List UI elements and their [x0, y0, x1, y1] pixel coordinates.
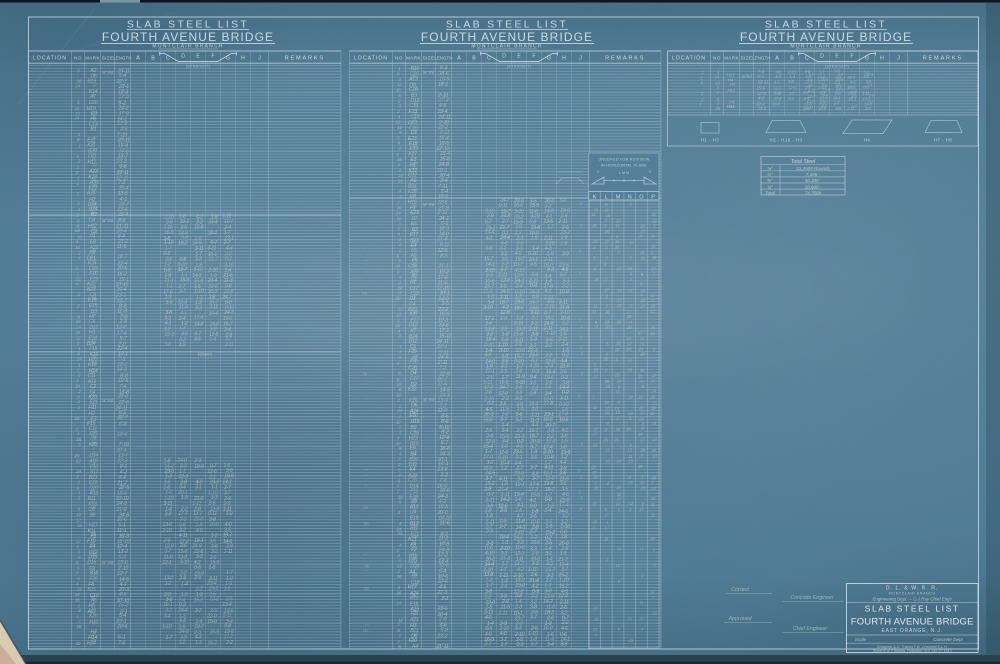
svg-text:3-3: 3-3	[865, 106, 871, 111]
svg-text:21-0: 21-0	[559, 363, 570, 369]
svg-text:18-8: 18-8	[483, 417, 493, 423]
svg-text:17-2: 17-2	[774, 96, 782, 101]
svg-text:20: 20	[650, 395, 656, 400]
svg-text:SIZE: SIZE	[102, 56, 114, 61]
svg-text:2-9: 2-9	[193, 575, 201, 581]
svg-text:SLAB STEEL LIST: SLAB STEEL LIST	[765, 19, 887, 31]
svg-text:1-2: 1-2	[164, 581, 171, 587]
svg-text:16: 16	[396, 591, 401, 597]
svg-text:10,600 ·: 10,600 ·	[805, 184, 822, 189]
svg-text:29: 29	[650, 378, 656, 383]
svg-text:29: 29	[627, 480, 633, 485]
svg-text:O: O	[649, 170, 652, 174]
svg-text:19-2: 19-2	[178, 240, 188, 246]
svg-text:3-9: 3-9	[562, 251, 569, 257]
svg-text:MARK: MARK	[85, 56, 100, 61]
svg-text:0-3: 0-3	[515, 396, 522, 402]
svg-text:H1 - H3: H1 - H3	[701, 138, 719, 143]
svg-text:20: 20	[590, 465, 596, 470]
svg-text:3-3: 3-3	[547, 267, 554, 273]
svg-text:3-10: 3-10	[193, 267, 203, 273]
svg-text:22: 22	[591, 310, 597, 315]
svg-text:21: 21	[410, 503, 415, 508]
svg-text:10-7: 10-7	[513, 262, 524, 268]
svg-text:18'-1: 18'-1	[438, 82, 448, 88]
svg-text:24: 24	[76, 586, 82, 592]
svg-text:15'-9: 15'-9	[756, 86, 765, 91]
svg-text:⅝″ Rd: ⅝″ Rd	[423, 202, 435, 207]
svg-text:21: 21	[90, 500, 95, 505]
svg-text:23: 23	[592, 239, 598, 244]
svg-text:23-0: 23-0	[514, 583, 525, 589]
svg-text:19-9: 19-9	[823, 88, 831, 93]
svg-text:Chief Engineer: Chief Engineer	[793, 626, 828, 632]
svg-text:10-8: 10-8	[559, 290, 569, 296]
svg-text:23'-6: 23'-6	[436, 606, 447, 612]
svg-text:3-3: 3-3	[515, 417, 522, 423]
svg-text:Engineering Dept — G.J.Ray Chi: Engineering Dept — G.J.Ray Chief Eng'r	[872, 597, 952, 602]
svg-text:24: 24	[395, 441, 401, 447]
svg-text:1-2: 1-2	[501, 465, 508, 471]
svg-text:24: 24	[395, 210, 401, 216]
svg-text:H13: H13	[727, 88, 735, 93]
svg-text:C6: C6	[89, 319, 95, 325]
svg-text:24: 24	[74, 416, 80, 422]
svg-text:16-2: 16-2	[208, 640, 218, 646]
svg-text:2-11: 2-11	[557, 219, 567, 225]
svg-text:20'-6: 20'-6	[116, 266, 127, 272]
svg-text:26: 26	[604, 229, 610, 234]
svg-text:19'-7: 19'-7	[117, 255, 128, 261]
svg-text:1-1: 1-1	[211, 485, 218, 491]
svg-text:3-10: 3-10	[773, 90, 781, 95]
svg-text:0-3: 0-3	[517, 642, 524, 648]
svg-text:20'-6: 20'-6	[116, 624, 127, 630]
svg-text:B1: B1	[90, 127, 96, 133]
svg-text:H: H	[562, 56, 566, 62]
svg-text:16-8: 16-8	[821, 77, 829, 82]
svg-text:1-10: 1-10	[162, 624, 172, 630]
svg-text:2-11: 2-11	[224, 342, 234, 348]
svg-text:1: 1	[580, 474, 582, 479]
svg-text:25: 25	[593, 368, 599, 373]
svg-text:12'-6: 12'-6	[118, 378, 128, 384]
svg-text:Concrete Engineer: Concrete Engineer	[790, 595, 834, 601]
svg-text:22-3: 22-3	[164, 332, 175, 338]
svg-text:2-9: 2-9	[178, 575, 186, 581]
svg-text:12: 12	[397, 382, 402, 388]
svg-text:16-0: 16-0	[209, 522, 219, 528]
svg-text:MONTCLAIR BRANCH: MONTCLAIR BRANCH	[889, 592, 936, 596]
svg-text:24: 24	[74, 84, 80, 90]
svg-text:16: 16	[716, 106, 721, 111]
svg-text:2-3: 2-3	[485, 529, 493, 535]
svg-text:20: 20	[650, 448, 656, 453]
svg-text:14-2: 14-2	[500, 497, 510, 503]
svg-text:8'-5: 8'-5	[440, 253, 448, 259]
svg-text:13-2: 13-2	[209, 597, 219, 603]
svg-text:19-9: 19-9	[821, 93, 829, 98]
svg-text:27: 27	[639, 304, 645, 309]
svg-text:EAST ORANGE, N.J.: EAST ORANGE, N.J.	[882, 628, 943, 634]
svg-text:21'-11: 21'-11	[435, 644, 448, 650]
svg-text:12: 12	[396, 312, 401, 318]
svg-text:3-1: 3-1	[195, 484, 202, 490]
svg-text:0-8: 0-8	[545, 497, 552, 503]
svg-text:12: 12	[76, 517, 81, 523]
svg-text:D: D	[502, 54, 506, 60]
svg-text:10-4: 10-4	[209, 311, 219, 317]
svg-text:22'-7: 22'-7	[117, 415, 129, 421]
svg-text:14'-8: 14'-8	[117, 367, 127, 373]
svg-text:23: 23	[639, 411, 645, 416]
svg-text:3-9: 3-9	[165, 300, 172, 306]
svg-text:15-0: 15-0	[194, 597, 204, 603]
svg-text:24: 24	[75, 469, 81, 475]
svg-text:27: 27	[627, 395, 633, 400]
svg-text:27: 27	[603, 277, 609, 282]
svg-text:Sheet 6 of 7 Sheets, Hoboken,: Sheet 6 of 7 Sheets, Hoboken, N.J. Oct 2…	[873, 649, 953, 653]
svg-text:7,305 ·: 7,305 ·	[806, 172, 821, 177]
svg-text:A: A	[136, 56, 140, 62]
svg-text:26: 26	[613, 438, 619, 443]
svg-text:L M N: L M N	[619, 171, 629, 175]
svg-text:⅜″ Rd: ⅜″ Rd	[102, 398, 114, 403]
svg-text:28: 28	[640, 448, 646, 453]
svg-text:12: 12	[396, 296, 401, 302]
svg-text:27: 27	[603, 239, 609, 244]
svg-text:3-4: 3-4	[164, 614, 171, 620]
svg-text:4-5: 4-5	[530, 262, 537, 268]
svg-text:25: 25	[637, 464, 643, 469]
svg-text:12-8: 12-8	[500, 278, 510, 284]
svg-text:19-7: 19-7	[223, 533, 234, 539]
svg-text:24: 24	[74, 228, 80, 234]
svg-text:24: 24	[396, 531, 402, 537]
svg-text:0-4: 0-4	[530, 283, 537, 289]
svg-text:17'-2: 17'-2	[438, 553, 448, 559]
svg-text:2-8: 2-8	[484, 390, 492, 396]
svg-text:18-9: 18-9	[194, 464, 204, 470]
svg-text:2-6: 2-6	[850, 93, 857, 98]
svg-text:26: 26	[591, 223, 597, 228]
svg-text:¾″ Rd: ¾″ Rd	[102, 218, 114, 223]
svg-text:1-4: 1-4	[209, 337, 216, 343]
svg-text:4-4: 4-4	[775, 74, 781, 79]
svg-text:27: 27	[640, 256, 646, 261]
svg-text:17-4: 17-4	[194, 315, 204, 321]
svg-text:ORDERED FOR REVISION: ORDERED FOR REVISION	[598, 158, 649, 162]
svg-text:3-11: 3-11	[207, 246, 216, 252]
svg-text:SIZE: SIZE	[741, 56, 753, 61]
svg-text:24: 24	[397, 173, 403, 179]
svg-text:13'-11: 13'-11	[758, 79, 769, 84]
svg-text:2-11: 2-11	[208, 304, 218, 310]
svg-text:P: P	[651, 195, 655, 201]
svg-text:⅜″: ⅜″	[767, 166, 773, 171]
svg-text:Total: Total	[765, 190, 776, 195]
svg-text:17-3: 17-3	[866, 72, 874, 77]
svg-text:26: 26	[603, 357, 609, 362]
svg-text:24: 24	[75, 319, 81, 325]
svg-text:19'-6: 19'-6	[117, 432, 127, 438]
svg-text:REMARKS: REMARKS	[285, 56, 325, 62]
svg-text:18-9: 18-9	[180, 278, 190, 284]
svg-text:22-7: 22-7	[835, 88, 844, 93]
svg-text:B: B	[151, 56, 155, 62]
svg-text:4-4: 4-4	[560, 460, 567, 466]
svg-text:10-5: 10-5	[559, 417, 569, 423]
svg-text:24: 24	[650, 234, 656, 239]
svg-text:J: J	[258, 56, 261, 62]
svg-text:2-5: 2-5	[208, 501, 216, 507]
svg-text:1: 1	[699, 102, 701, 107]
svg-text:2'-11: 2'-11	[437, 210, 448, 216]
svg-text:H2 - H16 - H3: H2 - H16 - H3	[769, 138, 802, 143]
svg-text:2-2: 2-2	[225, 640, 233, 646]
svg-text:24: 24	[396, 408, 402, 414]
svg-text:O: O	[639, 195, 644, 201]
svg-text:23'-2: 23'-2	[756, 106, 766, 111]
svg-text:16: 16	[397, 205, 402, 211]
svg-text:24: 24	[76, 357, 82, 363]
svg-text:⅜″ Rd: ⅜″ Rd	[102, 70, 114, 75]
svg-text:H14: H14	[727, 104, 735, 109]
svg-text:2-10: 2-10	[161, 528, 172, 534]
svg-text:0-2: 0-2	[487, 401, 494, 407]
svg-text:3'-5: 3'-5	[441, 301, 449, 307]
svg-text:1-9: 1-9	[560, 241, 567, 247]
svg-text:3-0: 3-0	[559, 198, 566, 204]
svg-text:24: 24	[394, 263, 400, 269]
svg-text:K: K	[593, 195, 597, 201]
svg-text:10-2: 10-2	[836, 82, 844, 87]
svg-text:FOURTH AVENUE BRIDGE: FOURTH AVENUE BRIDGE	[851, 617, 974, 628]
svg-text:H7: H7	[730, 82, 736, 87]
svg-text:3-4: 3-4	[547, 642, 554, 648]
svg-text:4-3: 4-3	[544, 288, 551, 294]
svg-text:22: 22	[616, 303, 622, 308]
svg-text:25: 25	[638, 454, 644, 459]
svg-text:3-2: 3-2	[562, 513, 569, 519]
svg-text:16: 16	[76, 624, 81, 630]
svg-text:2-2: 2-2	[515, 428, 523, 434]
svg-text:18-4: 18-4	[208, 230, 218, 236]
svg-text:REMARKS: REMARKS	[923, 56, 963, 62]
svg-text:1-11: 1-11	[223, 613, 232, 619]
svg-text:24: 24	[75, 324, 81, 330]
svg-text:23'-2: 23'-2	[436, 633, 447, 639]
svg-text:1-4: 1-4	[544, 508, 551, 514]
svg-text:⅝″: ⅝″	[767, 178, 773, 183]
svg-text:3-11: 3-11	[559, 395, 568, 401]
svg-text:28: 28	[616, 319, 622, 324]
svg-text:16: 16	[76, 437, 81, 443]
svg-text:A4: A4	[411, 644, 418, 650]
svg-text:12: 12	[76, 538, 81, 544]
svg-text:SIZE: SIZE	[423, 56, 435, 61]
svg-text:D: D	[181, 54, 185, 60]
svg-text:25: 25	[604, 410, 610, 415]
svg-text:16-0: 16-0	[772, 101, 780, 106]
svg-text:23: 23	[628, 638, 634, 643]
svg-text:28: 28	[593, 486, 599, 491]
svg-text:7'-6: 7'-6	[118, 641, 126, 647]
svg-text:16: 16	[74, 106, 79, 112]
svg-text:1-8: 1-8	[208, 565, 215, 571]
svg-text:29: 29	[639, 486, 645, 491]
svg-text:SLAB STEEL LIST: SLAB STEEL LIST	[446, 19, 568, 31]
svg-text:13-4: 13-4	[222, 602, 232, 608]
svg-text:4-9: 4-9	[484, 353, 491, 359]
svg-text:12: 12	[396, 323, 401, 329]
svg-text:LENGTH: LENGTH	[113, 56, 131, 61]
svg-text:26: 26	[615, 427, 621, 432]
svg-text:16: 16	[75, 330, 80, 336]
svg-text:13'-0: 13'-0	[116, 325, 126, 331]
svg-text:24: 24	[74, 453, 80, 459]
svg-text:H4: H4	[864, 138, 871, 143]
svg-text:25: 25	[590, 525, 596, 530]
svg-text:12-6: 12-6	[194, 225, 204, 231]
svg-text:10-1: 10-1	[806, 105, 813, 110]
svg-text:24: 24	[73, 116, 79, 122]
svg-text:23: 23	[627, 367, 633, 372]
svg-text:24-7: 24-7	[498, 385, 510, 391]
svg-text:16: 16	[75, 598, 80, 604]
svg-text:16: 16	[75, 245, 80, 251]
svg-text:23: 23	[627, 459, 633, 464]
svg-text:24: 24	[74, 384, 80, 390]
svg-text:3-3: 3-3	[196, 554, 203, 560]
svg-text:12-6: 12-6	[789, 85, 797, 90]
svg-text:⅜″Rd: ⅜″Rd	[741, 74, 752, 79]
svg-text:F: F	[850, 54, 853, 60]
svg-text:B18: B18	[90, 571, 99, 577]
svg-text:J: J	[897, 56, 900, 62]
svg-text:17-1: 17-1	[485, 369, 495, 375]
svg-text:12: 12	[396, 392, 401, 398]
svg-text:4-2: 4-2	[546, 561, 553, 567]
svg-text:18-6: 18-6	[514, 305, 524, 311]
svg-text:3-6: 3-6	[164, 342, 171, 348]
svg-text:3-8: 3-8	[560, 535, 567, 541]
svg-text:REMARKS: REMARKS	[605, 56, 645, 62]
svg-text:⅝″ Rd: ⅝″ Rd	[423, 70, 435, 75]
svg-text:4'-2: 4'-2	[758, 95, 765, 100]
svg-text:19-1: 19-1	[515, 482, 525, 488]
svg-text:16: 16	[396, 216, 401, 222]
svg-text:1-11: 1-11	[224, 549, 233, 555]
svg-text:2-7: 2-7	[530, 642, 539, 648]
svg-text:14-8: 14-8	[194, 322, 204, 328]
svg-text:1-8: 1-8	[529, 390, 536, 396]
svg-text:1-6: 1-6	[544, 385, 551, 391]
svg-text:Total Steel: Total Steel	[791, 159, 816, 165]
svg-text:12: 12	[76, 459, 81, 465]
svg-text:4'-0: 4'-0	[119, 592, 127, 598]
svg-text:24'-9: 24'-9	[116, 501, 127, 507]
svg-text:12: 12	[76, 512, 81, 518]
svg-text:F: F	[532, 54, 535, 60]
svg-text:L: L	[605, 195, 608, 201]
svg-text:27: 27	[603, 288, 609, 293]
svg-text:12: 12	[76, 641, 81, 647]
svg-text:1-2: 1-2	[179, 639, 186, 645]
svg-text:H: H	[241, 56, 245, 62]
svg-text:SLAB STEEL LIST: SLAB STEEL LIST	[127, 19, 249, 31]
svg-text:16: 16	[398, 179, 403, 185]
svg-text:1-11: 1-11	[498, 611, 507, 617]
svg-text:0-11: 0-11	[499, 203, 508, 209]
svg-text:M: M	[616, 195, 621, 201]
svg-text:3'-3: 3'-3	[441, 596, 449, 602]
svg-text:1-9: 1-9	[226, 511, 233, 517]
svg-text:22: 22	[649, 298, 655, 303]
svg-text:1-3: 1-3	[195, 640, 202, 646]
svg-text:1-10: 1-10	[546, 331, 556, 337]
svg-text:24: 24	[640, 298, 646, 303]
svg-text:11: 11	[414, 571, 418, 576]
svg-text:NO: NO	[713, 56, 721, 61]
svg-text:21-0: 21-0	[193, 517, 204, 523]
svg-text:74,758#: 74,758#	[805, 190, 822, 195]
svg-text:29: 29	[650, 244, 656, 249]
svg-text:24: 24	[626, 346, 632, 351]
svg-text:24: 24	[395, 601, 401, 607]
svg-text:20: 20	[626, 325, 632, 330]
svg-text:4-5: 4-5	[194, 337, 201, 343]
svg-text:3-8: 3-8	[835, 106, 841, 111]
svg-text:24: 24	[639, 341, 645, 346]
svg-text:19-6: 19-6	[530, 540, 540, 546]
svg-text:24: 24	[74, 592, 80, 598]
svg-text:23: 23	[627, 288, 633, 293]
svg-text:24'-8: 24'-8	[438, 162, 449, 168]
svg-text:26: 26	[649, 536, 655, 541]
svg-text:2-4: 2-4	[500, 584, 508, 590]
svg-text:Correct: Correct	[731, 587, 749, 593]
svg-text:4'-5: 4'-5	[439, 103, 447, 109]
svg-text:16: 16	[396, 87, 401, 93]
svg-text:17-8: 17-8	[543, 401, 553, 407]
svg-text:D: D	[820, 54, 824, 60]
svg-text:¾″ Rd: ¾″ Rd	[423, 397, 435, 402]
svg-text:½″ Rd: ½″ Rd	[102, 560, 114, 565]
svg-text:3-10: 3-10	[483, 305, 493, 311]
svg-text:21-8: 21-8	[806, 98, 815, 103]
svg-text:10-8: 10-8	[836, 77, 844, 82]
svg-text:FOURTH AVENUE BRIDGE: FOURTH AVENUE BRIDGE	[740, 30, 912, 44]
svg-text:8'-2: 8'-2	[757, 74, 764, 79]
svg-text:1-4: 1-4	[181, 582, 188, 588]
svg-text:3-3: 3-3	[195, 306, 202, 312]
svg-text:1-5: 1-5	[224, 586, 231, 592]
svg-text:23: 23	[625, 427, 631, 432]
svg-text:FOURTH AVENUE BRIDGE: FOURTH AVENUE BRIDGE	[102, 30, 274, 44]
svg-text:26: 26	[626, 617, 632, 622]
svg-text:12-8: 12-8	[500, 310, 510, 316]
svg-text:3-3: 3-3	[515, 626, 522, 632]
svg-text:25: 25	[614, 373, 620, 378]
svg-text:Concrete Dept: Concrete Dept	[933, 637, 963, 642]
svg-text:20: 20	[649, 325, 655, 330]
svg-text:1-4: 1-4	[500, 316, 507, 322]
svg-text:21'-6: 21'-6	[439, 520, 450, 526]
svg-text:Approved: Approved	[727, 616, 752, 622]
svg-text:6'-8: 6'-8	[119, 422, 127, 428]
svg-text:½″: ½″	[767, 171, 773, 177]
